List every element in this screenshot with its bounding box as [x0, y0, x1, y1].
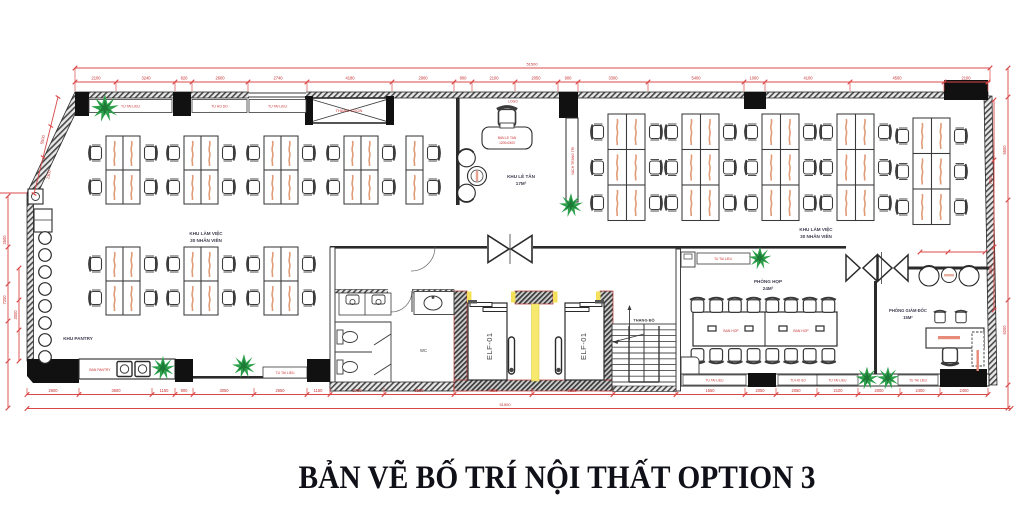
svg-text:1550: 1550 — [705, 388, 715, 393]
svg-text:7500: 7500 — [988, 175, 993, 185]
svg-text:KHU PANTRY: KHU PANTRY — [63, 336, 93, 341]
svg-text:2050: 2050 — [755, 388, 765, 393]
svg-text:4100: 4100 — [803, 76, 813, 81]
svg-text:800: 800 — [460, 76, 468, 81]
svg-text:3240: 3240 — [141, 76, 151, 81]
svg-text:2500: 2500 — [2, 235, 7, 245]
svg-text:KHU LÀM VIỆC: KHU LÀM VIỆC — [799, 225, 833, 232]
svg-text:4500: 4500 — [892, 76, 902, 81]
svg-text:24M²: 24M² — [763, 286, 774, 291]
svg-text:3150: 3150 — [567, 388, 577, 393]
svg-text:2740: 2740 — [273, 76, 283, 81]
svg-text:2400: 2400 — [915, 388, 925, 393]
svg-text:900: 900 — [181, 388, 189, 393]
svg-text:3300: 3300 — [608, 76, 618, 81]
svg-text:2650: 2650 — [275, 388, 285, 393]
svg-text:BAN LE TAN: BAN LE TAN — [498, 136, 517, 140]
svg-text:TU TAI LIEU: TU TAI LIEU — [909, 379, 927, 383]
svg-text:4050: 4050 — [488, 388, 498, 393]
svg-text:2100: 2100 — [833, 388, 843, 393]
svg-text:ELF-01: ELF-01 — [485, 332, 494, 360]
svg-text:2900: 2900 — [418, 76, 428, 81]
svg-text:820: 820 — [181, 76, 189, 81]
svg-text:2050: 2050 — [791, 388, 801, 393]
svg-text:LOGO: LOGO — [508, 100, 518, 104]
svg-text:1150: 1150 — [314, 388, 324, 393]
svg-text:KHU LỄ TÂN: KHU LỄ TÂN — [507, 173, 535, 179]
svg-text:THANG CUON: THANG CUON — [336, 108, 363, 113]
svg-text:TU TAI LIEU: TU TAI LIEU — [276, 371, 295, 375]
svg-text:15M²: 15M² — [903, 315, 913, 320]
svg-text:6200: 6200 — [1002, 325, 1007, 335]
svg-text:3050: 3050 — [219, 388, 229, 393]
svg-text:3600: 3600 — [111, 388, 121, 393]
svg-text:2050: 2050 — [531, 76, 541, 81]
svg-text:900: 900 — [565, 76, 573, 81]
svg-text:PHÒNG HỌP: PHÒNG HỌP — [754, 277, 782, 284]
svg-text:4500: 4500 — [988, 265, 993, 275]
svg-text:2400: 2400 — [959, 388, 969, 393]
svg-text:51500: 51500 — [526, 62, 538, 67]
svg-text:5500: 5500 — [1002, 145, 1007, 155]
svg-text:7200: 7200 — [2, 295, 7, 305]
svg-text:1000: 1000 — [749, 76, 759, 81]
svg-text:TU TAI LIEU: TU TAI LIEU — [714, 257, 732, 261]
svg-text:TU HO SO: TU HO SO — [790, 379, 806, 383]
svg-text:KHU LÀM VIỆC: KHU LÀM VIỆC — [189, 229, 223, 236]
svg-text:2100: 2100 — [961, 76, 971, 81]
svg-text:17M²: 17M² — [516, 181, 527, 186]
svg-text:1150: 1150 — [160, 388, 170, 393]
svg-text:1200x2400: 1200x2400 — [499, 141, 515, 145]
svg-text:ELF-01: ELF-01 — [579, 332, 588, 360]
svg-text:BAN PANTRY: BAN PANTRY — [89, 368, 111, 372]
svg-text:BAN HOP: BAN HOP — [793, 329, 809, 333]
svg-text:2600: 2600 — [215, 76, 225, 81]
svg-text:4180: 4180 — [345, 76, 355, 81]
svg-text:BAN HOP: BAN HOP — [723, 329, 739, 333]
svg-text:2000: 2000 — [874, 388, 884, 393]
svg-text:5400: 5400 — [691, 76, 701, 81]
svg-text:3500: 3500 — [414, 388, 424, 393]
svg-text:30 NHÂN VIÊN: 30 NHÂN VIÊN — [190, 236, 222, 243]
svg-text:THANG BỘ: THANG BỘ — [633, 318, 654, 323]
svg-text:TU TAI LIEU: TU TAI LIEU — [829, 379, 847, 383]
svg-text:VACH TRANG TRI: VACH TRANG TRI — [571, 147, 575, 175]
svg-text:TU TAI LIEU: TU TAI LIEU — [268, 105, 287, 109]
svg-text:WC: WC — [420, 348, 427, 353]
svg-text:2600: 2600 — [48, 388, 58, 393]
svg-text:3000: 3000 — [13, 310, 18, 320]
svg-text:PHÒNG GIÁM ĐỐC: PHÒNG GIÁM ĐỐC — [889, 308, 927, 313]
svg-text:BẢN VẼ BỐ TRÍ NỘI THẤT OPTION: BẢN VẼ BỐ TRÍ NỘI THẤT OPTION 3 — [299, 457, 816, 496]
svg-text:2100: 2100 — [91, 76, 101, 81]
svg-text:2100: 2100 — [489, 76, 499, 81]
svg-text:TU TAI LIEU: TU TAI LIEU — [121, 105, 140, 109]
svg-text:30 NHÂN VIÊN: 30 NHÂN VIÊN — [800, 232, 832, 239]
svg-text:51500: 51500 — [499, 402, 511, 407]
svg-text:TU TAI LIEU: TU TAI LIEU — [706, 379, 724, 383]
svg-text:TU HO SO: TU HO SO — [211, 105, 228, 109]
svg-text:2700: 2700 — [352, 388, 362, 393]
